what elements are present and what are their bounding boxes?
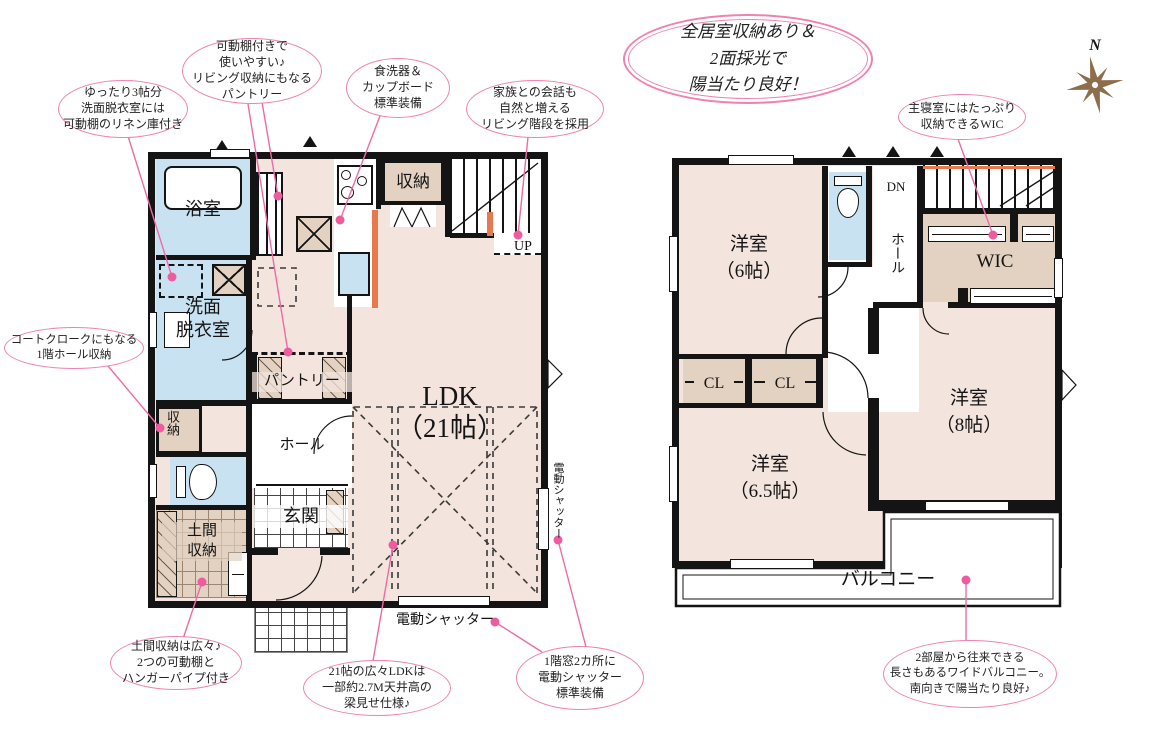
toilet-tank — [176, 466, 186, 498]
window — [728, 155, 794, 165]
window — [669, 236, 678, 292]
wall — [679, 403, 823, 408]
linen-cabinet — [159, 264, 203, 298]
label-dn: DN — [880, 179, 912, 196]
wall — [828, 262, 872, 267]
label-cl-right: CL — [765, 374, 805, 395]
stairs-1f — [450, 159, 541, 233]
wall — [252, 548, 278, 555]
stove-burner — [341, 186, 354, 199]
callout-living-stairs: 家族との会話も 自然と増える リビング階段を採用 — [466, 80, 604, 138]
wall — [917, 208, 1062, 214]
stair-accent — [923, 166, 1055, 169]
label-bedroom6: 洋室 （6帖） — [689, 232, 809, 285]
wall — [816, 354, 823, 408]
label-bedroom65: 洋室 （6.5帖） — [700, 452, 840, 505]
headline-badge-text: 全居室収納あり＆ 2面採光で 陽当たり良好！ — [628, 19, 868, 99]
vanity-unit — [212, 264, 246, 296]
label-pantry: パントリー — [252, 372, 352, 392]
label-hall-storage: 収納 — [166, 410, 179, 436]
wall — [156, 255, 256, 260]
wall — [320, 548, 350, 555]
wall — [866, 166, 872, 267]
pillar-accent — [487, 212, 493, 236]
stove-burner — [357, 176, 367, 186]
wall — [156, 400, 252, 406]
wall — [958, 288, 968, 308]
floorplan-canvas: 浴室 洗面 脱衣室 パントリー 収納 収納 ホール 玄関 土間 収納 LDK （… — [0, 0, 1149, 739]
toilet-bowl — [189, 464, 217, 500]
label-hall-2f: ホール — [889, 232, 903, 274]
storage-door — [390, 205, 436, 227]
stove-burner — [341, 170, 351, 180]
pillar-accent — [372, 210, 378, 308]
callout-balcony: 2部屋から往来できる 長さもあるワイドバルコニー。 南向きで陽当たり良好♪ — [883, 640, 1057, 708]
wall — [156, 452, 252, 457]
stairs-2f — [923, 165, 1055, 208]
label-ldk: LDK （21帖） — [375, 380, 525, 445]
toilet-tank — [834, 176, 862, 186]
label-up: UP — [505, 238, 541, 256]
wall — [917, 166, 923, 214]
window — [925, 501, 1009, 511]
entrance-step — [256, 484, 348, 486]
callout-doma: 土間収納は広々♪ 2つの可動棚と ハンガーパイプ付き — [110, 636, 242, 690]
label-cl-left: CL — [694, 374, 734, 395]
callout-shutter: 1階窓2カ所に 電動シャッター 標準装備 — [516, 646, 644, 710]
window — [149, 464, 157, 498]
label-doma: 土間 収納 — [162, 522, 242, 561]
label-washroom: 洗面 脱衣室 — [148, 296, 258, 343]
label-bath: 浴室 — [156, 198, 250, 221]
kitchen-sink — [338, 252, 370, 296]
callout-linen: ゆったり3帖分 洗面脱衣室には 可動棚のリネン庫付き — [58, 80, 188, 138]
cupboard — [296, 216, 332, 252]
compass-icon — [1062, 54, 1128, 116]
wall — [868, 398, 879, 504]
vent-icon — [886, 146, 900, 157]
hall-2f-area — [873, 166, 919, 412]
label-wic: WIC — [930, 250, 1060, 275]
wall — [917, 214, 923, 308]
wall — [445, 159, 450, 237]
callout-wic: 主寝室にはたっぷり 収納できるWIC — [898, 94, 1026, 140]
vent-icon — [842, 146, 856, 157]
wall — [873, 302, 923, 308]
wic-shelf — [928, 226, 1006, 242]
wic-shelf — [970, 288, 1056, 304]
living-storage-cabinet — [255, 172, 283, 256]
window-shutter-bottom — [398, 596, 490, 606]
wall — [745, 354, 752, 408]
callout-hall-storage: コートクロークにもなる 1階ホール収納 — [4, 327, 144, 369]
label-entrance: 玄関 — [254, 505, 348, 528]
wall — [1010, 214, 1018, 242]
callout-dishwasher: 食洗器＆ カップボード 標準装備 — [346, 58, 450, 118]
vent-icon — [303, 136, 317, 147]
label-kitchen-storage: 収納 — [381, 171, 445, 193]
label-bedroom8: 洋室 （8帖） — [899, 386, 1039, 439]
callout-ldk-ceiling: 21帖の広々LDKは 一部約2.7M天井高の 梁見せ仕様♪ — [303, 660, 451, 716]
label-shutter-right: 電動シャッター — [552, 462, 563, 539]
callout-pantry: 可動棚付きで 使いやすい♪ リビング収納にもなる パントリー — [182, 38, 322, 104]
window — [669, 446, 678, 502]
label-hall-1f: ホール — [252, 436, 352, 456]
headline-badge: 全居室収納あり＆ 2面採光で 陽当たり良好！ — [623, 14, 873, 104]
wic-shelf — [1022, 226, 1054, 242]
window — [210, 149, 250, 158]
wall — [868, 308, 879, 354]
label-shutter-bottom: 電動シャッター — [385, 612, 505, 630]
wall — [156, 505, 252, 510]
window-shutter-right — [538, 488, 549, 550]
window — [730, 559, 814, 569]
label-balcony: バルコニー — [818, 568, 958, 593]
vent-icon — [930, 146, 944, 157]
